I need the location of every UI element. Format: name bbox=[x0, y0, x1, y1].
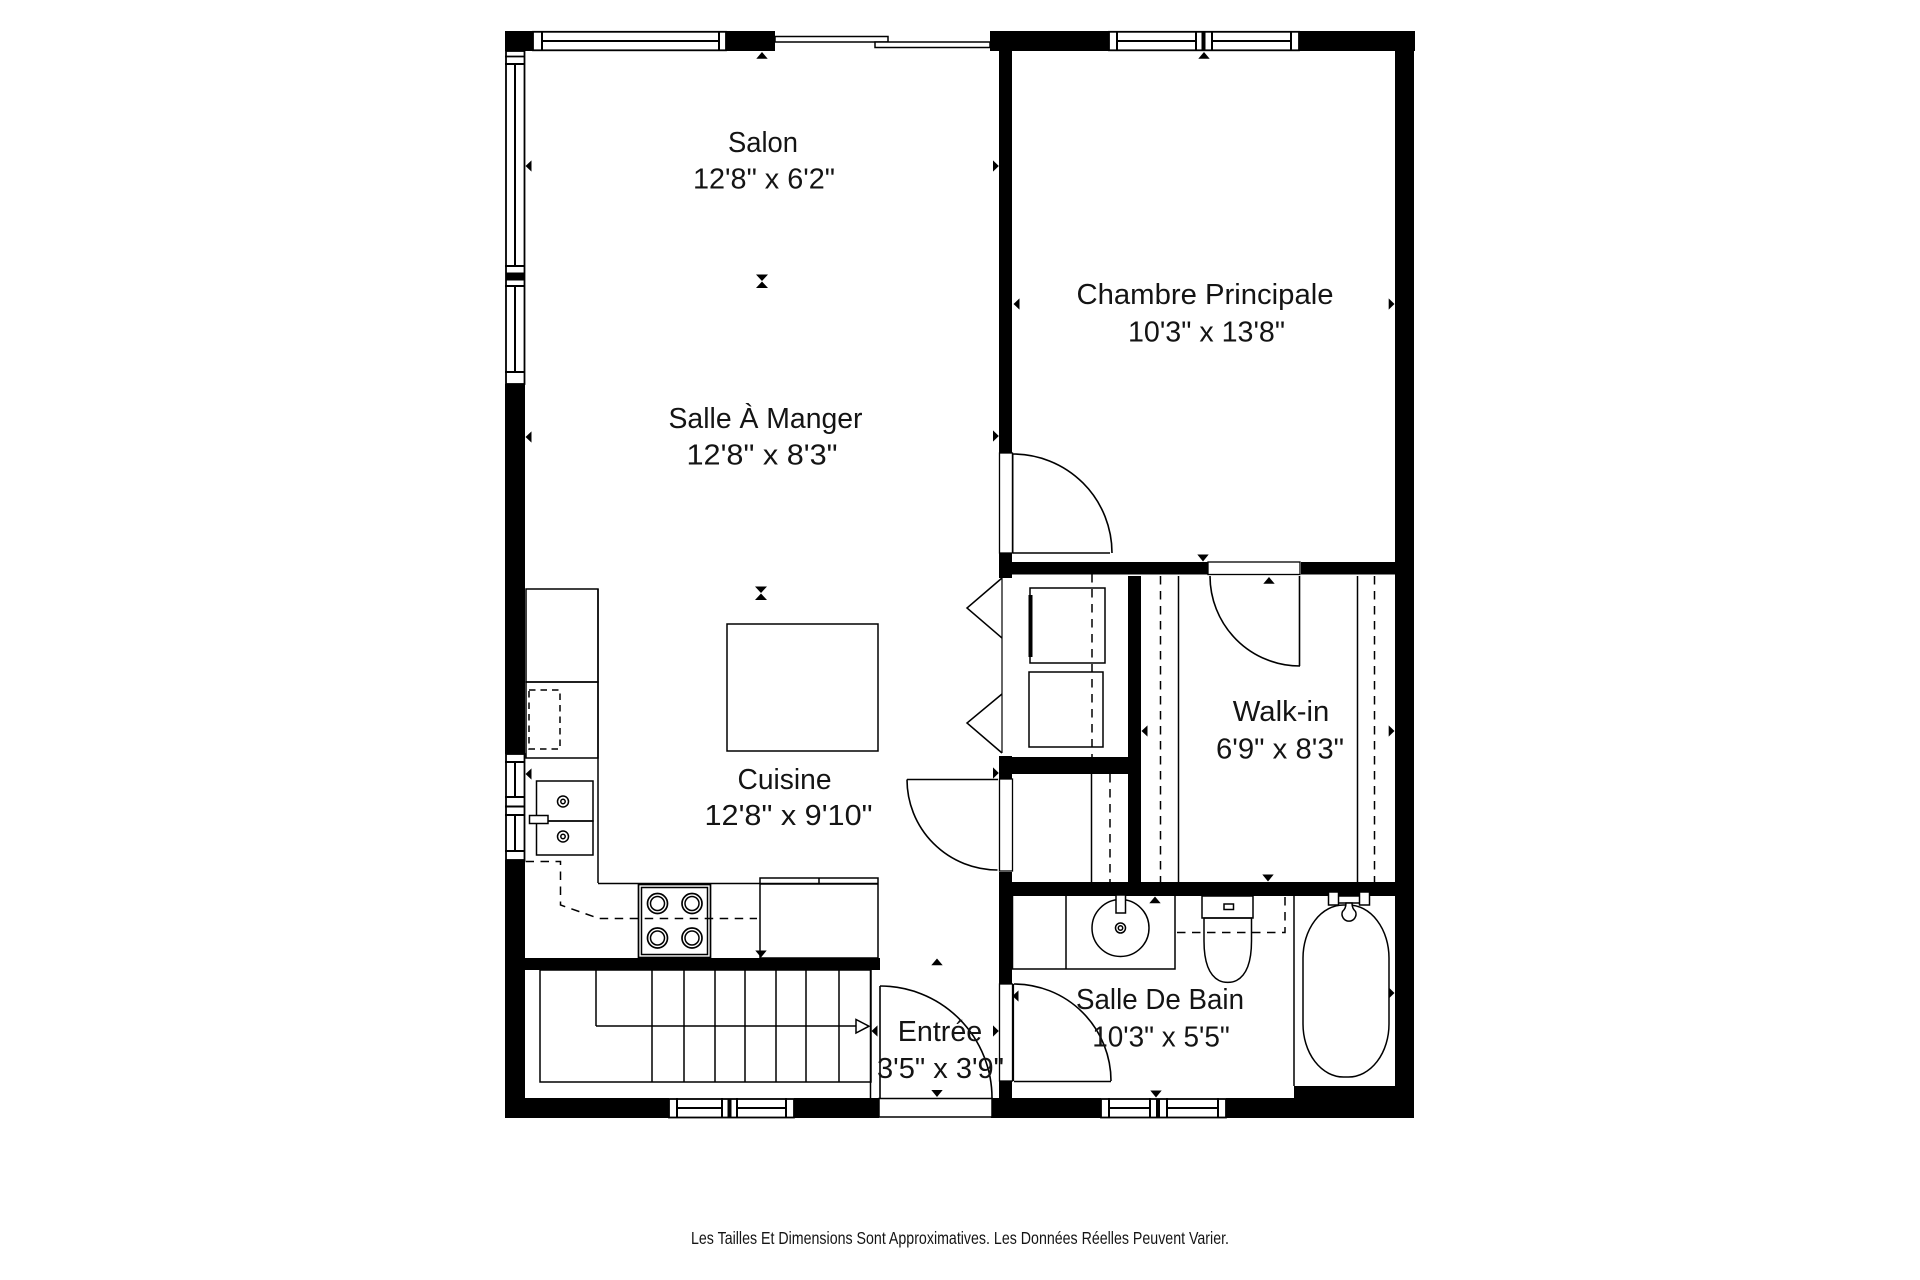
svg-text:Salon: Salon bbox=[728, 127, 798, 159]
svg-text:Cuisine: Cuisine bbox=[738, 764, 832, 796]
svg-text:12'8" x 8'3": 12'8" x 8'3" bbox=[687, 440, 838, 472]
svg-text:3'5" x 3'9": 3'5" x 3'9" bbox=[877, 1053, 1004, 1085]
svg-text:10'3" x 13'8": 10'3" x 13'8" bbox=[1128, 317, 1285, 349]
svg-text:Walk-in: Walk-in bbox=[1233, 696, 1330, 728]
svg-text:Chambre Principale: Chambre Principale bbox=[1077, 279, 1334, 311]
svg-text:Salle De Bain: Salle De Bain bbox=[1076, 984, 1244, 1016]
svg-text:Salle À Manger: Salle À Manger bbox=[669, 402, 863, 435]
svg-text:Les Tailles Et Dimensions Sont: Les Tailles Et Dimensions Sont Approxima… bbox=[691, 1228, 1229, 1248]
svg-text:12'8" x 9'10": 12'8" x 9'10" bbox=[705, 800, 873, 832]
svg-text:10'3" x 5'5": 10'3" x 5'5" bbox=[1092, 1022, 1230, 1054]
svg-text:Entrée: Entrée bbox=[898, 1016, 983, 1048]
svg-text:6'9" x 8'3": 6'9" x 8'3" bbox=[1216, 734, 1344, 766]
svg-text:12'8" x 6'2": 12'8" x 6'2" bbox=[693, 164, 835, 196]
